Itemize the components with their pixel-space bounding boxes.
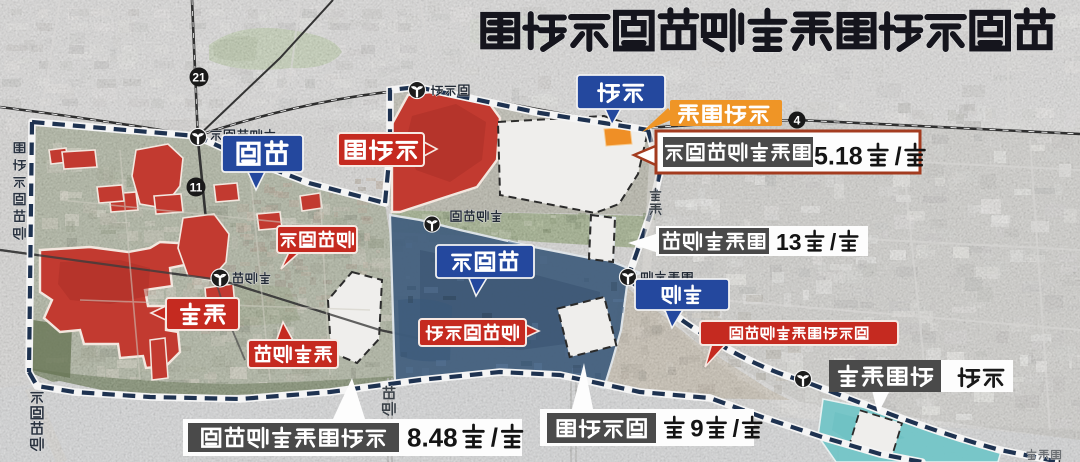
svg-text:8.48: 8.48 (407, 422, 458, 452)
svg-text:/: / (895, 143, 902, 171)
svg-text:4: 4 (794, 114, 801, 128)
svg-text:13: 13 (776, 229, 802, 255)
svg-text:5.18: 5.18 (814, 143, 863, 171)
svg-text:/: / (830, 229, 837, 255)
svg-text:/: / (491, 422, 498, 452)
svg-text:21: 21 (192, 71, 206, 85)
svg-text:11: 11 (190, 181, 203, 195)
svg-text:/: / (733, 416, 740, 443)
svg-text:9: 9 (690, 416, 703, 443)
